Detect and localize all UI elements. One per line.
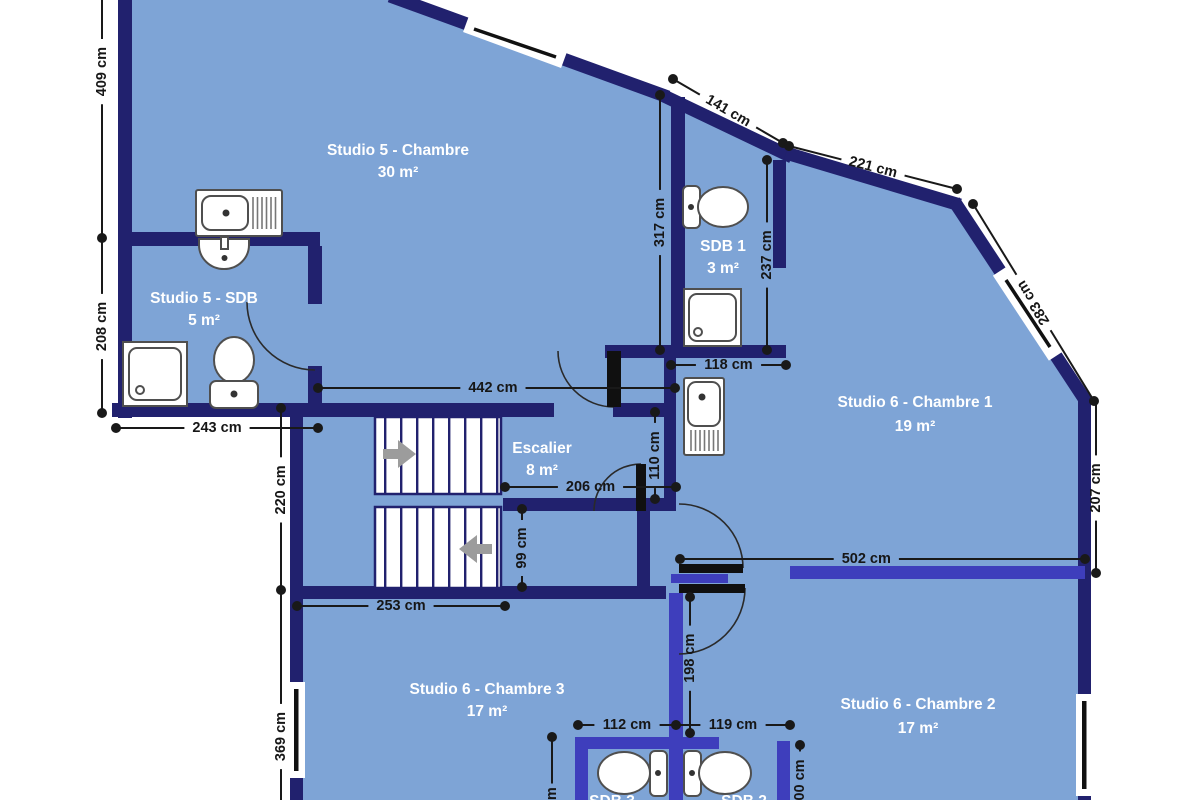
dimension-label: 206 cm — [566, 479, 615, 495]
room-label: Escalier — [512, 440, 571, 457]
dimension-endpoint-dot — [500, 482, 510, 492]
dimension-endpoint-dot — [1080, 554, 1090, 564]
dimension-endpoint-dot — [762, 345, 772, 355]
dimension-label: 119 cm — [709, 717, 757, 733]
wall-segment — [671, 574, 728, 583]
dimension-endpoint-dot — [795, 740, 805, 750]
dimension-endpoint-dot — [655, 345, 665, 355]
room-area: 19 m² — [895, 418, 936, 435]
dimension-label: 110 cm — [647, 431, 663, 479]
dimension-endpoint-dot — [292, 601, 302, 611]
kitchenette-icon — [196, 190, 282, 236]
room-area: 8 m² — [526, 462, 558, 479]
floor-plan-page: Studio 5 - Chambre 30 m² Studio 5 - SDB … — [0, 0, 1200, 800]
dimension-endpoint-dot — [517, 582, 527, 592]
toilet-icon — [683, 186, 748, 228]
room-area: 17 m² — [467, 703, 508, 720]
dimension-endpoint-dot — [762, 155, 772, 165]
dimension-endpoint-dot — [573, 720, 583, 730]
room-label: Studio 6 - Chambre 3 — [409, 681, 564, 698]
dimension: 409 cm — [94, 0, 110, 243]
dimension-endpoint-dot — [784, 141, 794, 151]
dimension-endpoint-dot — [313, 423, 323, 433]
dimension-endpoint-dot — [675, 554, 685, 564]
dimension-label: 118 cm — [704, 357, 752, 373]
room-label: SDB 1 — [700, 238, 746, 255]
dimension-label: 208 cm — [94, 302, 110, 351]
dimension-label: 99 cm — [514, 527, 530, 568]
dimension-label: 243 cm — [192, 420, 241, 436]
dimension-label: 502 cm — [842, 551, 891, 567]
dimension-endpoint-dot — [671, 482, 681, 492]
dimension-label: 112 cm — [603, 717, 651, 733]
wall-segment — [575, 737, 719, 749]
room-area: 5 m² — [188, 312, 220, 329]
dimension-endpoint-dot — [670, 383, 680, 393]
dimension-endpoint-dot — [685, 592, 695, 602]
room-label: Studio 5 - Chambre — [327, 142, 469, 159]
dimension-endpoint-dot — [1091, 568, 1101, 578]
dimension-endpoint-dot — [650, 494, 660, 504]
dimension-label: 369 cm — [273, 712, 289, 761]
room-label: Studio 6 - Chambre 1 — [837, 394, 992, 411]
dimension-label: 237 cm — [759, 230, 775, 279]
dimension-endpoint-dot — [313, 383, 323, 393]
wall-segment — [790, 566, 1085, 579]
dimension: 208 cm — [94, 240, 110, 418]
wall-segment — [575, 737, 588, 800]
wall-segment — [669, 593, 683, 800]
floor-plan-canvas: Studio 5 - Chambre 30 m² Studio 5 - SDB … — [0, 0, 1200, 800]
dimension-endpoint-dot — [952, 184, 962, 194]
toilet-icon — [598, 751, 667, 796]
dimension-label: 200 cm — [792, 759, 808, 800]
wall-segment — [308, 246, 322, 304]
dimension-endpoint-dot — [97, 408, 107, 418]
dimension-endpoint-dot — [650, 407, 660, 417]
dimension-endpoint-dot — [517, 504, 527, 514]
dimension-endpoint-dot — [1089, 396, 1099, 406]
wall-segment — [664, 353, 676, 500]
wall-segment — [637, 511, 650, 591]
toilet-icon — [210, 337, 258, 408]
dimension-endpoint-dot — [655, 90, 665, 100]
room-area: 3 m² — [707, 260, 739, 277]
wall-segment — [503, 498, 676, 511]
dimension-label: 207 cm — [1088, 463, 1104, 512]
room-label: Studio 5 - SDB — [150, 290, 258, 307]
dimension-label: 442 cm — [468, 380, 517, 396]
dimension: 369 cm — [273, 590, 289, 800]
dimension-endpoint-dot — [781, 360, 791, 370]
dimension-endpoint-dot — [500, 601, 510, 611]
dimension-label: 317 cm — [652, 198, 668, 247]
shower-icon — [123, 342, 187, 406]
dimension-label: 198 cm — [682, 634, 698, 683]
dimension-endpoint-dot — [968, 199, 978, 209]
dimension-label: 253 cm — [376, 598, 425, 614]
dimension-endpoint-dot — [547, 732, 557, 742]
shower-icon — [684, 289, 741, 346]
room-label: SDB 2 — [721, 793, 767, 800]
dimension-endpoint-dot — [685, 728, 695, 738]
window-icon — [1076, 694, 1093, 796]
room-label: SDB 3 — [589, 793, 635, 800]
door-leaf-icon — [679, 564, 743, 573]
dimension-endpoint-dot — [785, 720, 795, 730]
room-area: 17 m² — [898, 720, 939, 737]
toilet-icon — [684, 751, 751, 796]
dimension-label: 220 cm — [273, 465, 289, 514]
dimension-endpoint-dot — [668, 74, 678, 84]
dimension-endpoint-dot — [276, 403, 286, 413]
dimension-label: 409 cm — [94, 47, 110, 96]
window-icon — [288, 682, 305, 778]
door-leaf-icon — [607, 351, 621, 407]
dimension-endpoint-dot — [111, 423, 121, 433]
door-leaf-icon — [679, 584, 745, 593]
room-area: 30 m² — [378, 164, 419, 181]
kitchenette-icon — [684, 378, 724, 455]
dimension: 220 cm — [273, 403, 289, 595]
dimension-endpoint-dot — [666, 360, 676, 370]
dimension-label: cm — [544, 787, 560, 800]
wall-segment — [777, 741, 790, 800]
room-label: Studio 6 - Chambre 2 — [840, 696, 995, 713]
